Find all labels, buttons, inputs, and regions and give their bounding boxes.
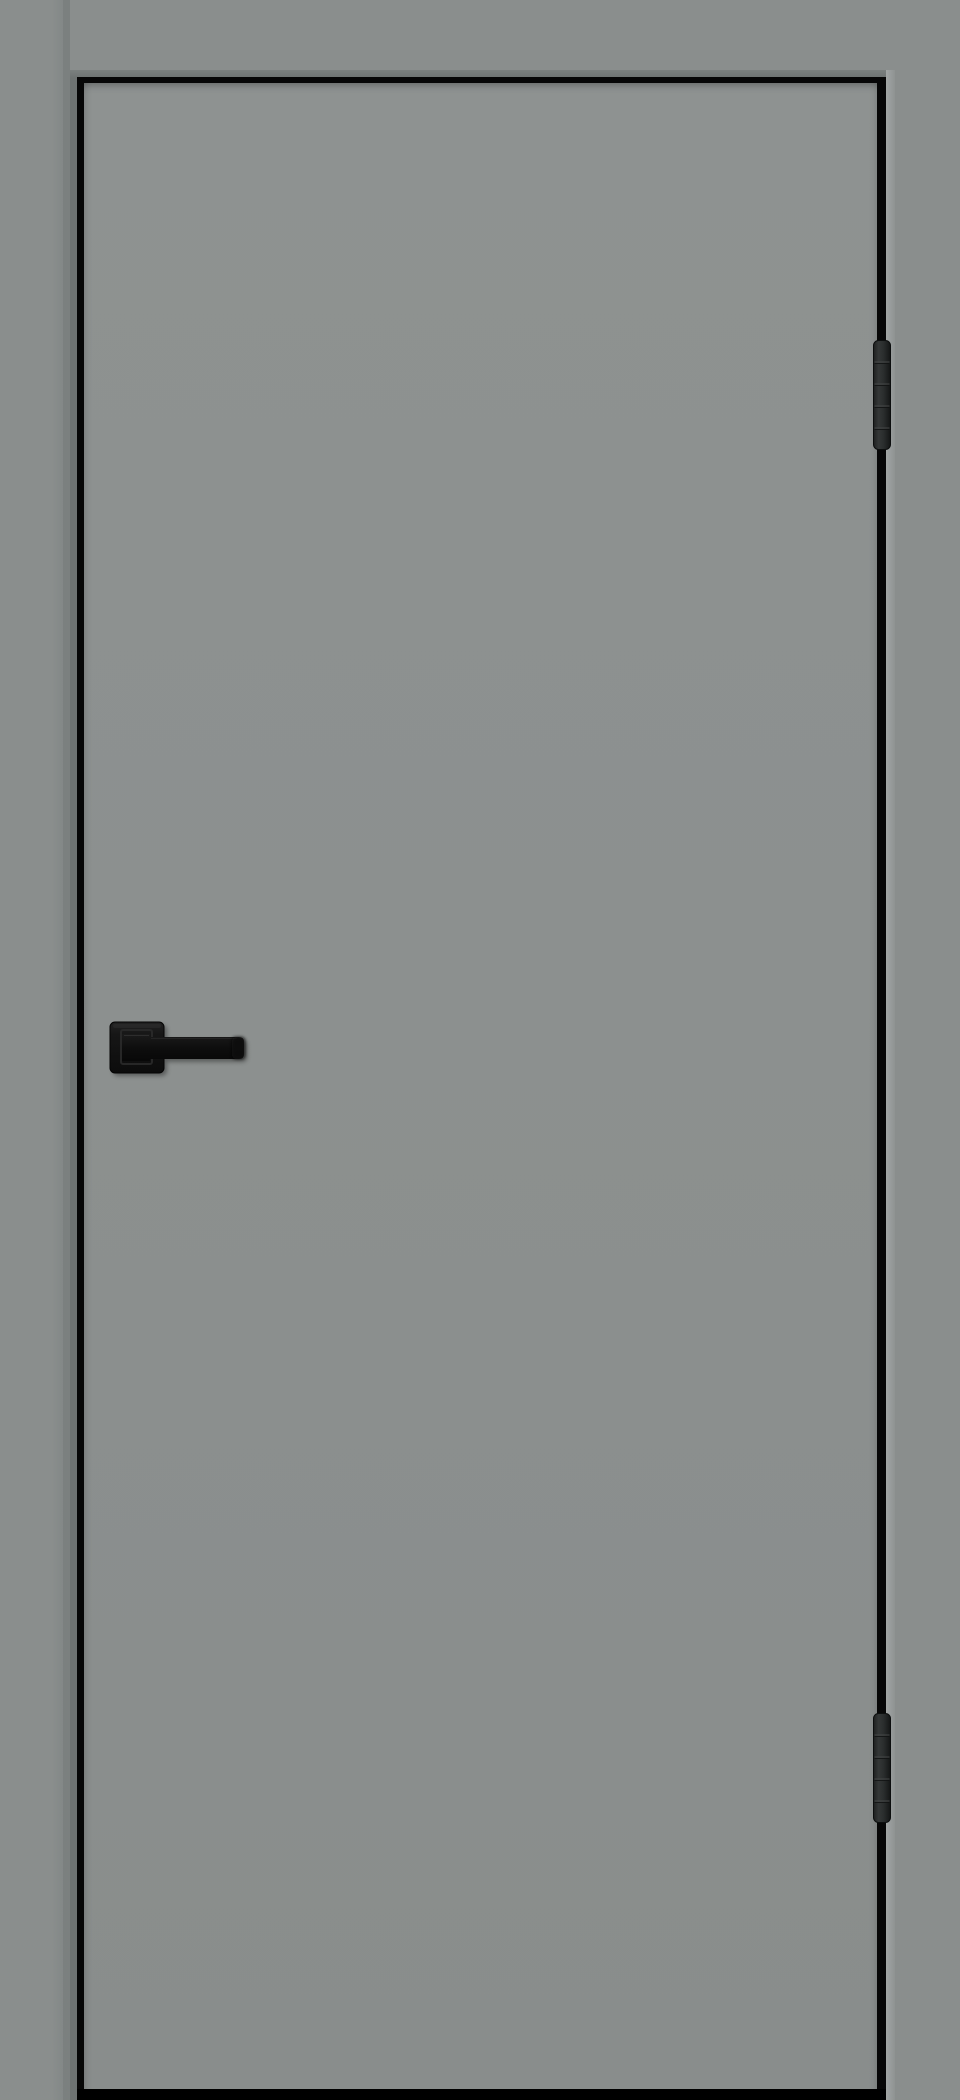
frame-left-seam (63, 0, 70, 2100)
lever-tip-blur (232, 1037, 245, 1059)
hinge-barrel (874, 1714, 891, 1823)
door-frame-right-jamb (886, 0, 960, 2100)
hinge-barrel (874, 341, 891, 450)
rosette-top-highlight (113, 1024, 161, 1028)
door-handle (104, 1016, 264, 1088)
door-frame-left-jamb (0, 0, 63, 2100)
door-product-photo (0, 0, 960, 2100)
top-hinge (873, 340, 891, 450)
threshold-shadow (77, 2089, 886, 2100)
bottom-hinge (873, 1713, 891, 1823)
door-frame-head-jamb (70, 0, 886, 70)
